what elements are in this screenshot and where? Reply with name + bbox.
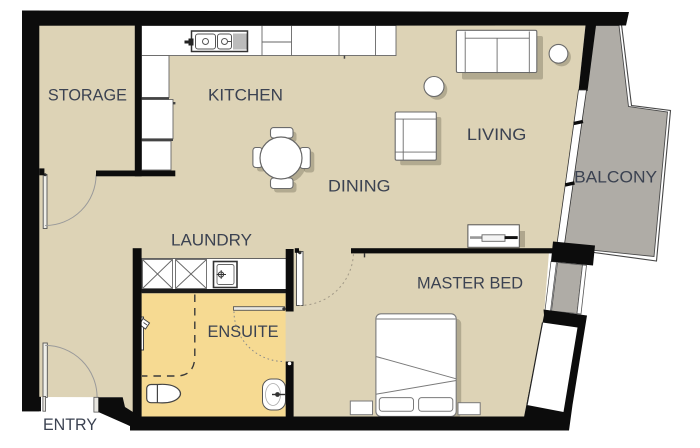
svg-text:DINING: DINING — [328, 178, 391, 196]
svg-text:MASTER BED: MASTER BED — [417, 274, 523, 292]
svg-text:ENSUITE: ENSUITE — [208, 323, 279, 341]
svg-text:ENTRY: ENTRY — [43, 416, 97, 434]
svg-text:KITCHEN: KITCHEN — [208, 87, 283, 105]
svg-text:STORAGE: STORAGE — [48, 87, 127, 105]
svg-text:BALCONY: BALCONY — [574, 169, 657, 187]
svg-text:LAUNDRY: LAUNDRY — [171, 232, 252, 250]
svg-text:LIVING: LIVING — [467, 126, 527, 144]
